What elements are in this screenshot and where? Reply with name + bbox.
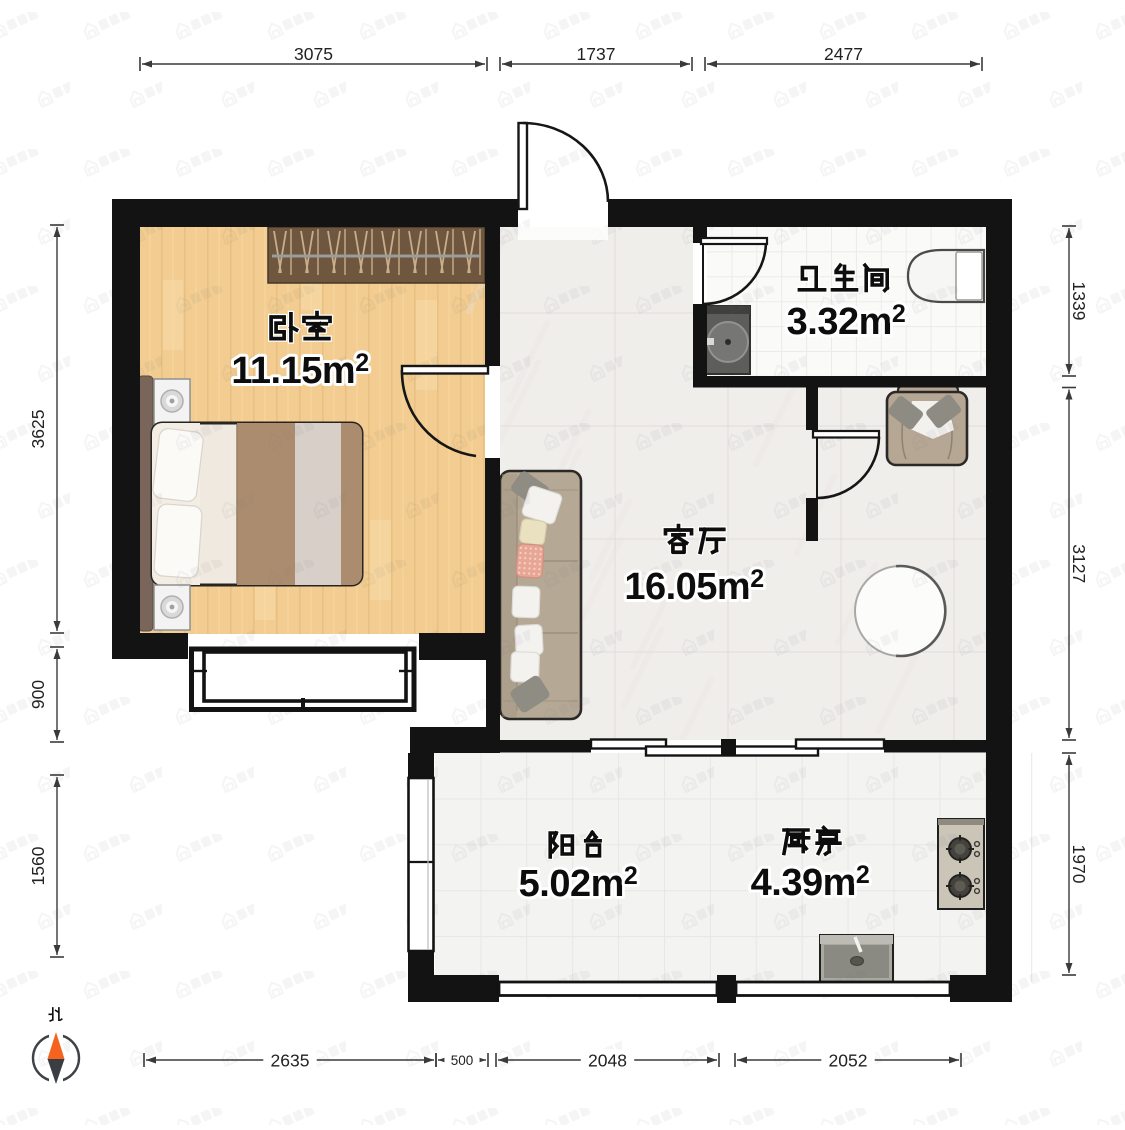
svg-text:3075: 3075 (294, 44, 333, 64)
svg-text:1737: 1737 (577, 44, 616, 64)
svg-text:3127: 3127 (1069, 544, 1089, 583)
svg-text:900: 900 (28, 680, 48, 709)
svg-text:1339: 1339 (1069, 282, 1089, 321)
svg-text:5.02m2: 5.02m2 (519, 862, 638, 905)
svg-text:4.39m2: 4.39m2 (751, 861, 870, 904)
svg-text:1970: 1970 (1069, 845, 1089, 884)
svg-text:3625: 3625 (28, 410, 48, 449)
svg-text:2477: 2477 (824, 44, 863, 64)
svg-text:3.32m2: 3.32m2 (787, 300, 906, 343)
svg-text:2052: 2052 (829, 1050, 868, 1070)
svg-text:2635: 2635 (271, 1050, 310, 1070)
svg-text:2048: 2048 (588, 1050, 627, 1070)
svg-text:1560: 1560 (28, 846, 48, 885)
svg-text:500: 500 (451, 1053, 474, 1068)
svg-text:11.15m2: 11.15m2 (231, 349, 368, 392)
svg-text:16.05m2: 16.05m2 (624, 565, 763, 608)
